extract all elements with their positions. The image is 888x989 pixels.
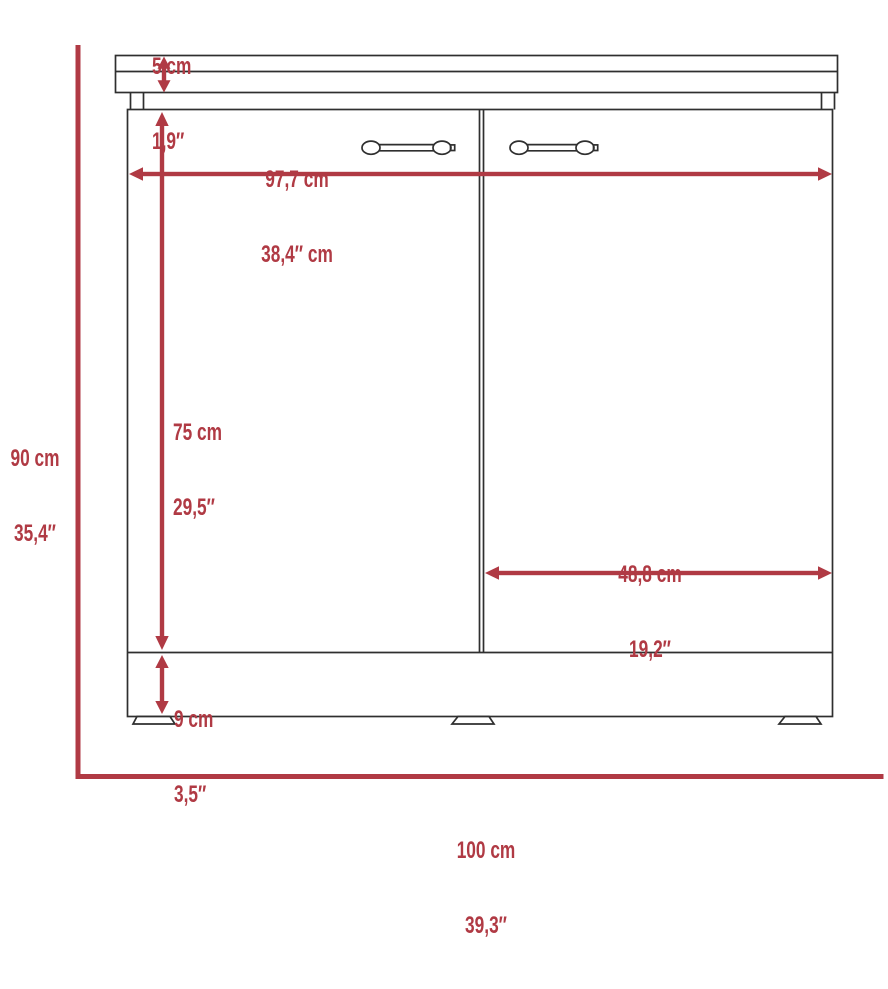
label-overall-height: 90 cm 35,4″	[10, 396, 60, 596]
door-width-cm: 48,8 cm	[605, 562, 694, 587]
label-overall-width: 100 cm 39,3″	[441, 788, 530, 988]
dim-arrow-base-height	[155, 655, 168, 714]
label-door-width: 48,8 cm 19,2″	[605, 512, 694, 712]
label-interior-width: 97,7 cm 38,4″ cm	[255, 117, 340, 317]
door-handle-left-icon	[362, 141, 455, 154]
interior-width-cm: 97,7 cm	[255, 167, 340, 192]
door-height-in: 29,5″	[173, 495, 222, 520]
countertop	[116, 56, 838, 93]
dimension-diagram: 5 cm 1,9″ 97,7 cm 38,4″ cm 90 cm 35,4″ 7…	[0, 0, 888, 842]
cabinet-feet	[133, 717, 821, 725]
label-door-height: 75 cm 29,5″	[173, 370, 222, 570]
interior-width-in: 38,4″ cm	[255, 242, 340, 267]
countertop-thickness-in: 1,9″	[152, 129, 191, 154]
overall-height-cm: 90 cm	[10, 446, 60, 471]
door-width-in: 19,2″	[605, 637, 694, 662]
overall-width-in: 39,3″	[441, 913, 530, 938]
dim-arrow-interior-width	[129, 167, 832, 180]
door-handle-right-icon	[510, 141, 598, 154]
overall-height-in: 35,4″	[10, 521, 60, 546]
base-height-in: 3,5″	[174, 782, 213, 807]
countertop-supports	[131, 93, 835, 110]
door-height-cm: 75 cm	[173, 420, 222, 445]
cabinet-body	[128, 110, 833, 717]
label-base-height: 9 cm 3,5″	[174, 657, 213, 857]
label-countertop-thickness: 5 cm 1,9″	[152, 4, 191, 204]
cabinet-drawing	[116, 56, 838, 725]
base-height-cm: 9 cm	[174, 707, 213, 732]
cabinet-line-art	[0, 0, 888, 842]
countertop-thickness-cm: 5 cm	[152, 54, 191, 79]
